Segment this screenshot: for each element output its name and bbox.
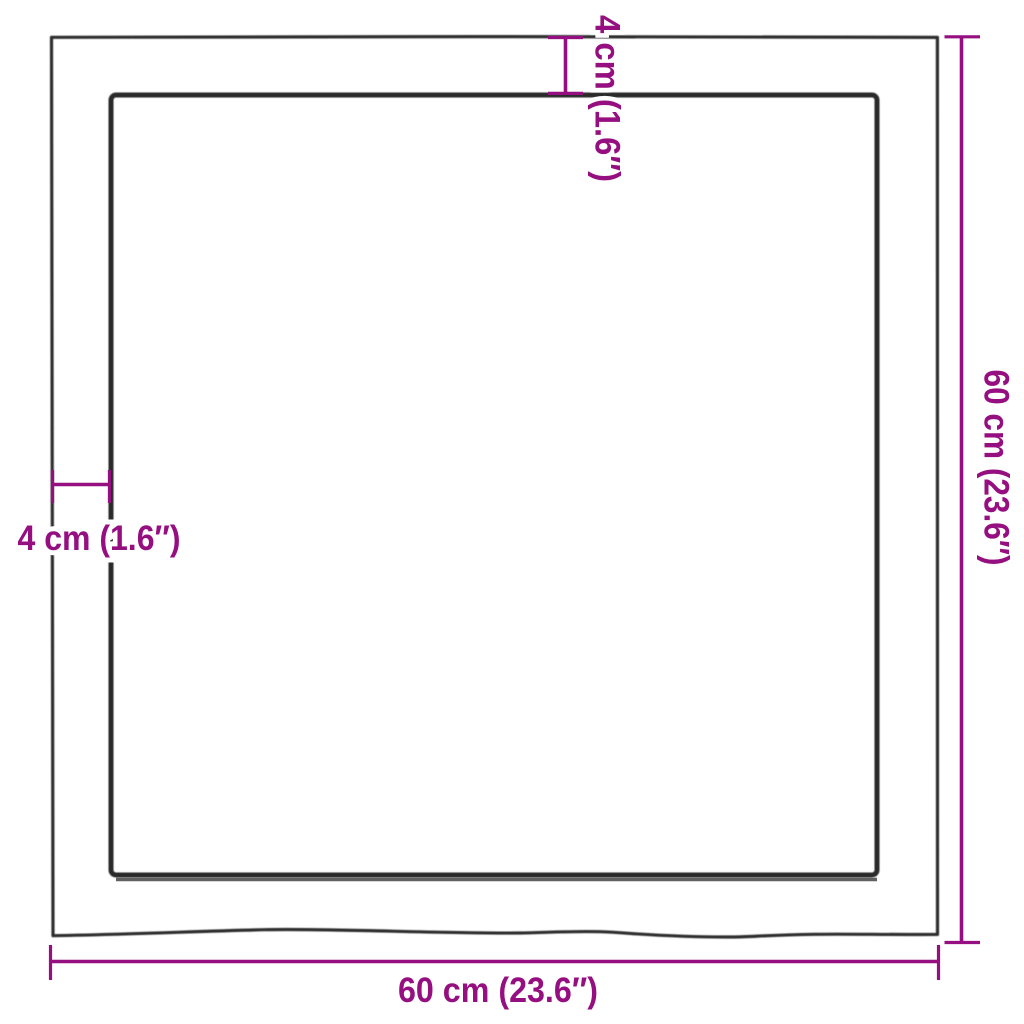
svg-text:4 cm (1.6″): 4 cm (1.6″) (588, 15, 627, 182)
svg-text:60 cm (23.6″): 60 cm (23.6″) (977, 370, 1016, 566)
svg-text:60 cm (23.6″): 60 cm (23.6″) (398, 971, 598, 1010)
svg-text:4 cm (1.6″): 4 cm (1.6″) (18, 519, 181, 558)
